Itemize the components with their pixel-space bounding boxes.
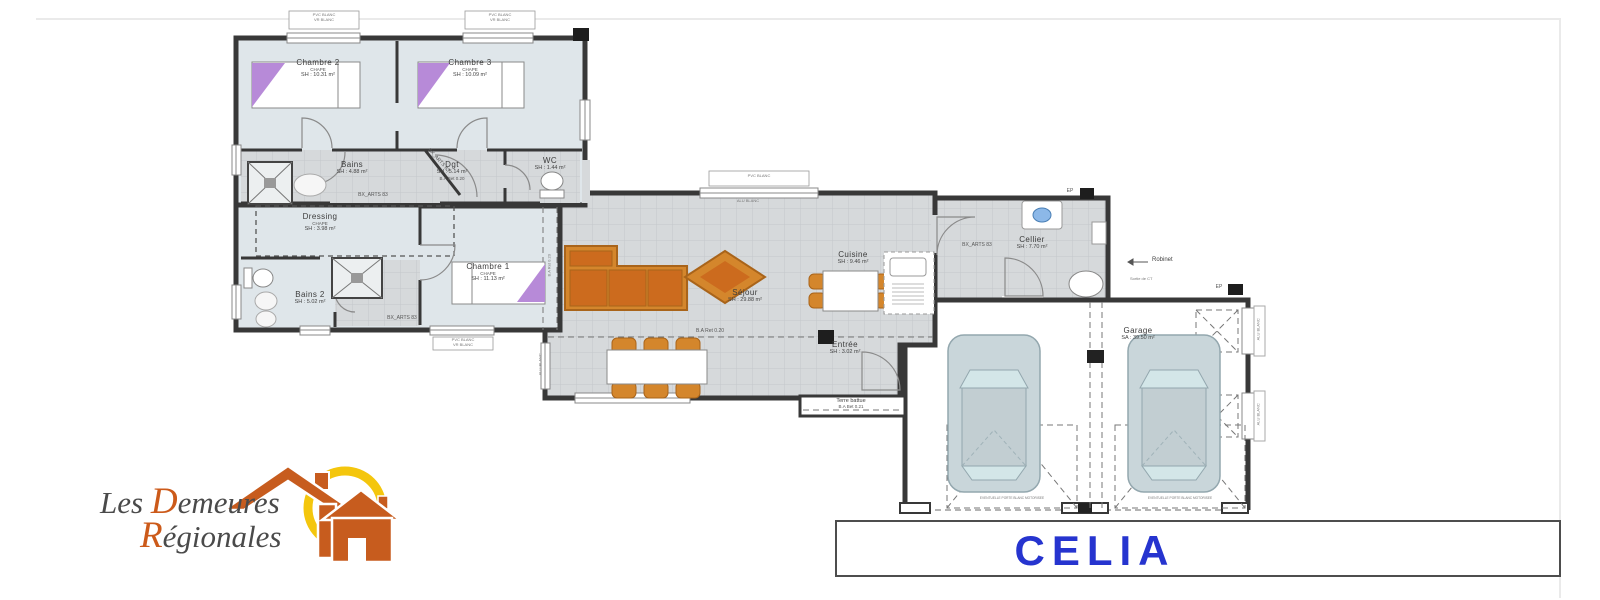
company-logo: Les Demeures Régionales <box>98 456 418 586</box>
robinet-arrow <box>1128 259 1148 265</box>
floor-plan-sheet: Chambre 2 CHAPE SH : 10.31 m² Chambre 3 … <box>0 0 1600 600</box>
logo-text-line2: Régionales <box>140 514 390 557</box>
garage-door-note-1: EVENTUELLE PORTE BLANC MOTORISEE <box>964 496 1060 500</box>
annotation-sortie: Sortie de CT <box>1130 277 1180 282</box>
annotation-bx-arts-1: BX_ARTS 83 <box>343 193 403 199</box>
garage-door-note-2: EVENTUELLE PORTE BLANC MOTORISEE <box>1132 496 1228 500</box>
annotation-ep-2: EP <box>1211 285 1227 291</box>
annotation-alu-blanc-4: ALU BLANC <box>1257 389 1262 439</box>
window-tag-1: PVC BLANCVR BLANC <box>289 13 359 22</box>
dining-table-set <box>607 338 707 398</box>
passage-gap <box>582 160 590 203</box>
model-name-title: CELIA <box>835 527 1355 575</box>
car-left <box>948 335 1040 492</box>
kitchen-counter <box>884 252 934 314</box>
window-tag-2: PVC BLANCVR BLANC <box>465 13 535 22</box>
garage-stub-left <box>900 503 930 513</box>
annotation-robinet: Robinet <box>1152 257 1202 264</box>
annotation-bx-arts-3: BX_ARTS 83 <box>947 243 1007 249</box>
annotation-alu-blanc-1: ALU BLANC <box>718 199 778 204</box>
annotation-alu-blanc-3: ALU BLANC <box>1257 304 1262 354</box>
garage-center-post <box>1087 350 1104 363</box>
annotation-bx-arts-2: BX_ARTS 83 <box>372 316 432 322</box>
annotation-ep-1: EP <box>1062 189 1078 195</box>
car-right <box>1128 335 1220 492</box>
annotation-ba-ret-vertical: B.A Ret 0.20 <box>548 235 553 295</box>
window-tag-4: PVC BLANCVR BLANC <box>433 338 493 347</box>
annotation-alu-blanc-2: ALU BLANC <box>539 339 544 389</box>
terre-battue-outline <box>800 396 905 416</box>
annotation-ba-ret: B.A Ret 0.20 <box>675 329 745 335</box>
window-tag-3: PVC BLANC <box>709 174 809 179</box>
